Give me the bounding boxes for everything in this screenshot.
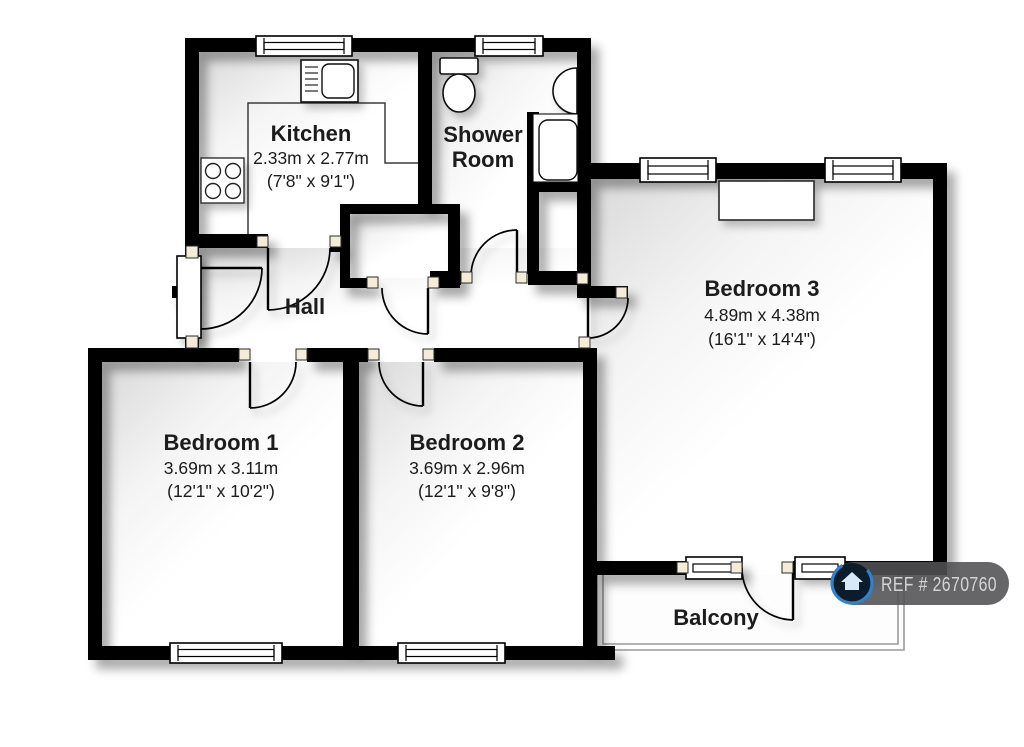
wall-segment bbox=[88, 348, 239, 362]
door-jamb bbox=[428, 277, 439, 288]
wall-segment bbox=[418, 38, 432, 208]
room-label-shower-line1: Shower bbox=[443, 122, 523, 147]
room-label-shower-line2: Room bbox=[452, 147, 514, 172]
kitchen-window bbox=[256, 36, 352, 56]
room-dims-kitchen-imperial: (7'8" x 9'1") bbox=[267, 171, 355, 191]
bedroom-3-floor bbox=[591, 179, 933, 561]
door-jamb bbox=[579, 337, 590, 348]
room-label-bedroom-3: Bedroom 3 bbox=[705, 276, 820, 301]
room-dims-bedroom-3-imperial: (16'1" x 14'4") bbox=[708, 329, 816, 349]
wall-segment bbox=[340, 204, 460, 214]
room-label-bedroom-2: Bedroom 2 bbox=[410, 430, 525, 455]
ref-badge: REF # 2670760 bbox=[824, 555, 1009, 611]
bedroom-3-window-top-right bbox=[825, 158, 901, 182]
room-dims-bedroom-2-metric: 3.69m x 2.96m bbox=[409, 458, 525, 478]
door-jamb bbox=[239, 349, 250, 360]
floorplan-canvas: Kitchen 2.33m x 2.77m (7'8" x 9'1") Show… bbox=[0, 0, 1024, 747]
room-dims-bedroom-3-metric: 4.89m x 4.38m bbox=[704, 305, 820, 325]
door-jamb bbox=[368, 349, 379, 360]
floorplan-svg: Kitchen 2.33m x 2.77m (7'8" x 9'1") Show… bbox=[0, 0, 1024, 747]
wall-segment bbox=[343, 348, 359, 646]
room-dims-bedroom-2-imperial: (12'1" x 9'8") bbox=[418, 481, 516, 501]
door-jamb bbox=[186, 336, 198, 348]
door-jamb bbox=[330, 236, 341, 247]
ref-badge-text: REF # 2670760 bbox=[881, 573, 997, 596]
bedroom-1-floor bbox=[102, 362, 343, 646]
room-label-bedroom-1: Bedroom 1 bbox=[164, 430, 279, 455]
door-jamb bbox=[186, 246, 198, 258]
room-label-balcony: Balcony bbox=[673, 605, 759, 630]
door-jamb bbox=[616, 287, 627, 298]
wardrobe-outline bbox=[719, 181, 814, 220]
room-dims-kitchen-metric: 2.33m x 2.77m bbox=[253, 148, 369, 168]
door-jamb bbox=[257, 236, 268, 247]
room-label-hall: Hall bbox=[285, 294, 325, 319]
toilet bbox=[440, 58, 478, 112]
door-jamb bbox=[296, 349, 307, 360]
door-jamb bbox=[367, 277, 378, 288]
bedroom-1-window bbox=[170, 643, 282, 663]
wall-segment bbox=[88, 348, 102, 660]
shower-tray bbox=[533, 114, 578, 182]
door-jamb bbox=[731, 562, 742, 573]
kitchen-sink bbox=[301, 60, 358, 102]
room-dims-bedroom-1-metric: 3.69m x 3.11m bbox=[164, 458, 278, 478]
bedroom-2-floor bbox=[359, 362, 583, 646]
room-dims-bedroom-1-imperial: (12'1" x 10'2") bbox=[167, 481, 275, 501]
wall-segment bbox=[933, 163, 947, 575]
door-jamb bbox=[516, 272, 527, 283]
wall-segment bbox=[583, 348, 597, 648]
cupboard-floor bbox=[350, 214, 448, 278]
door-jamb bbox=[677, 562, 688, 573]
door-jamb bbox=[423, 349, 434, 360]
wall-segment bbox=[88, 646, 615, 660]
bedroom-3-window-top-left bbox=[640, 158, 716, 182]
room-label-kitchen: Kitchen bbox=[271, 121, 352, 146]
wall-segment bbox=[434, 348, 590, 362]
bedroom-2-window bbox=[398, 643, 505, 663]
shower-room-window bbox=[475, 36, 543, 56]
door-jamb bbox=[782, 562, 793, 573]
door-jamb bbox=[577, 273, 588, 284]
door-jamb bbox=[461, 272, 472, 283]
hob bbox=[201, 158, 244, 203]
